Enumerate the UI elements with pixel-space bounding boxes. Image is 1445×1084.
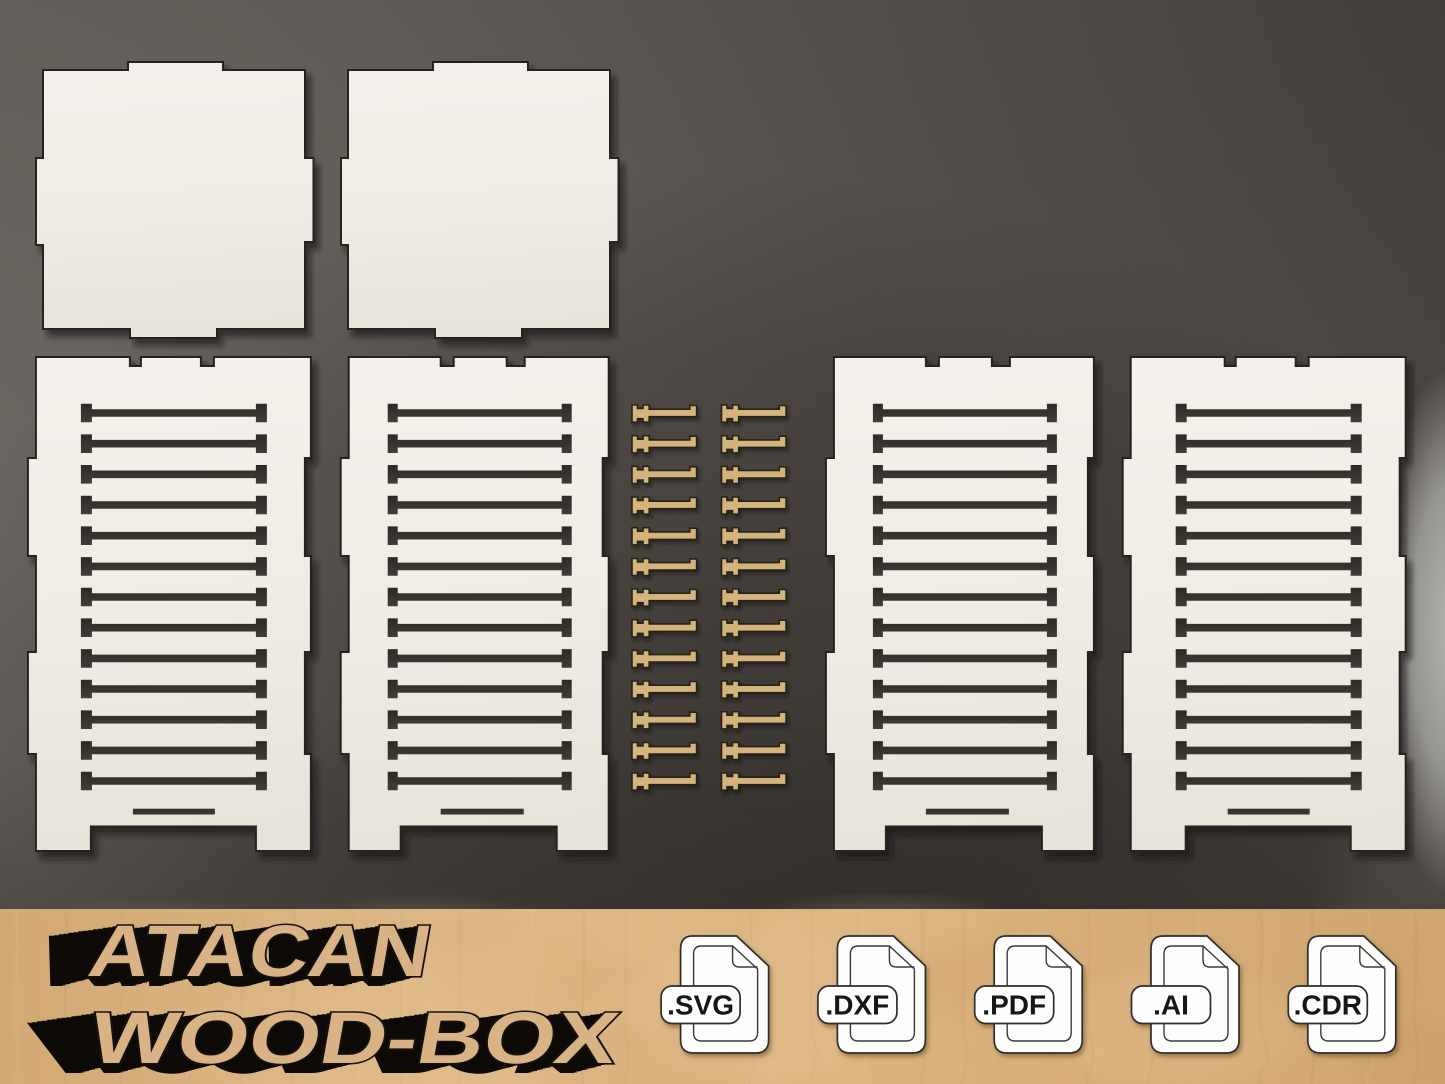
svg-text:.DXF: .DXF — [826, 990, 890, 1021]
svg-text:.AI: .AI — [1153, 990, 1189, 1021]
svg-text:.PDF: .PDF — [982, 990, 1046, 1021]
svg-text:WOOD-BOX: WOOD-BOX — [84, 997, 625, 1079]
svg-text:ATACAN: ATACAN — [83, 910, 438, 992]
svg-text:.SVG: .SVG — [667, 990, 734, 1021]
svg-text:.CDR: .CDR — [1294, 990, 1362, 1021]
